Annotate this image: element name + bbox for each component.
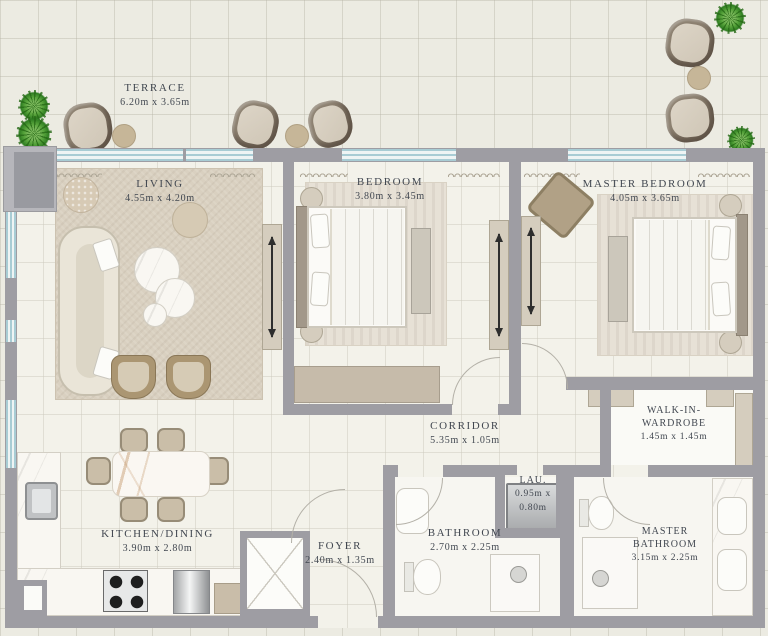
master-sink bbox=[717, 549, 747, 591]
wall-bedroom-master bbox=[509, 160, 521, 415]
living-dims: 4.55m x 4.20m bbox=[95, 192, 225, 205]
window bbox=[6, 400, 16, 468]
foyer-label: FOYER 2.40m x 1.35m bbox=[295, 540, 385, 567]
laundry-dims-2: 0.80m bbox=[505, 502, 561, 515]
stove bbox=[103, 570, 148, 612]
utility-box-inner bbox=[14, 152, 54, 208]
appliance bbox=[173, 570, 210, 614]
terrace-name: TERRACE bbox=[75, 82, 235, 95]
bed-pillow bbox=[711, 281, 731, 316]
foyer-name: FOYER bbox=[295, 540, 385, 553]
coffee-table bbox=[143, 303, 167, 327]
window bbox=[6, 212, 16, 278]
wall-corridor-south bbox=[383, 465, 398, 477]
plant-icon bbox=[714, 2, 746, 34]
walkin-name-2: WARDROBE bbox=[615, 417, 733, 430]
window bbox=[186, 149, 253, 161]
shelf-unit bbox=[262, 224, 282, 350]
wall-corridor-south bbox=[443, 465, 495, 477]
master-bedroom-dims: 4.05m x 3.65m bbox=[570, 192, 720, 205]
wall-bedroom-south bbox=[283, 404, 452, 415]
corridor-label: CORRIDOR 5.35m x 1.05m bbox=[400, 420, 530, 447]
window bbox=[568, 149, 686, 161]
window bbox=[342, 149, 456, 161]
walk-in-wardrobe-label: WALK-IN- WARDROBE 1.45m x 1.45m bbox=[615, 404, 733, 444]
opening-arrow-icon bbox=[530, 228, 532, 314]
walkin-name-1: WALK-IN- bbox=[615, 404, 733, 417]
dining-chair bbox=[86, 457, 111, 485]
kitchen-dining-label: KITCHEN/DINING 3.90m x 2.80m bbox=[85, 528, 230, 555]
accent-chair bbox=[111, 355, 156, 399]
dining-chair bbox=[157, 497, 185, 522]
bed-pillow bbox=[711, 225, 731, 260]
window bbox=[57, 149, 183, 161]
bedroom-wardrobe bbox=[489, 220, 509, 350]
kitchen-cabinet bbox=[214, 583, 242, 614]
wall-bottom bbox=[5, 616, 318, 628]
shower-head-icon bbox=[510, 566, 527, 583]
wall-corridor-south bbox=[648, 465, 765, 477]
master-bedroom-name: MASTER BEDROOM bbox=[570, 178, 720, 191]
bathroom-name: BATHROOM bbox=[400, 527, 530, 540]
master-bed-duvet bbox=[636, 220, 710, 330]
accent-chair bbox=[166, 355, 211, 399]
knit-pouf bbox=[63, 177, 99, 213]
wall-walkin-west bbox=[600, 390, 611, 477]
master-bathroom-dims: 3.15m x 2.25m bbox=[610, 552, 720, 565]
foyer-dims: 2.40m x 1.35m bbox=[295, 554, 385, 567]
walkin-cabinet bbox=[735, 393, 753, 469]
curtain-icon bbox=[698, 171, 750, 177]
kitchen-dining-name: KITCHEN/DINING bbox=[85, 528, 230, 541]
wall-masterbath-west bbox=[560, 477, 574, 616]
master-sink bbox=[717, 497, 747, 535]
wall-master-south bbox=[566, 377, 765, 390]
laundry-label: LAU. 0.95m x 0.80m bbox=[505, 474, 561, 515]
curtain-icon bbox=[210, 171, 255, 177]
master-bathroom-label: MASTER BATHROOM 3.15m x 2.25m bbox=[610, 525, 720, 565]
master-wardrobe bbox=[521, 216, 541, 326]
bedroom-name: BEDROOM bbox=[320, 176, 460, 189]
bedroom-dims: 3.80m x 3.45m bbox=[320, 190, 460, 203]
bed-duvet bbox=[330, 209, 404, 325]
kitchen-sink-basin bbox=[32, 489, 51, 513]
wall-corridor-south bbox=[566, 465, 605, 477]
wall-column-niche bbox=[24, 586, 42, 610]
bed-pillow bbox=[310, 213, 330, 248]
bed-pillow bbox=[310, 271, 330, 306]
wall-living-bedroom bbox=[283, 160, 294, 415]
terrace-side-table bbox=[687, 66, 711, 90]
master-bedroom-label: MASTER BEDROOM 4.05m x 3.65m bbox=[570, 178, 720, 205]
kitchen-dining-dims: 3.90m x 2.80m bbox=[85, 542, 230, 555]
corridor-name: CORRIDOR bbox=[400, 420, 530, 433]
master-bathroom-name-1: MASTER bbox=[610, 525, 720, 538]
dining-chair bbox=[157, 428, 185, 453]
window bbox=[6, 320, 16, 342]
terrace-side-table bbox=[285, 124, 309, 148]
opening-arrow-icon bbox=[271, 237, 273, 336]
terrace-side-table bbox=[112, 124, 136, 148]
toilet bbox=[413, 559, 441, 595]
bedroom-label: BEDROOM 3.80m x 3.45m bbox=[320, 176, 460, 203]
terrace-label: TERRACE 6.20m x 3.65m bbox=[75, 82, 235, 109]
laundry-name: LAU. bbox=[505, 474, 561, 487]
living-label: LIVING 4.55m x 4.20m bbox=[95, 178, 225, 205]
curtain-icon bbox=[52, 171, 102, 177]
dining-chair bbox=[120, 497, 148, 522]
wall-bedroom-south-stub bbox=[498, 404, 509, 415]
living-name: LIVING bbox=[95, 178, 225, 191]
walkin-dims: 1.45m x 1.45m bbox=[615, 431, 733, 444]
floor-plan: TERRACE 6.20m x 3.65m bbox=[0, 0, 768, 636]
opening-arrow-icon bbox=[498, 234, 500, 336]
bedroom-bench bbox=[411, 228, 431, 314]
terrace-dims: 6.20m x 3.65m bbox=[75, 96, 235, 109]
shower bbox=[490, 554, 540, 612]
wall-bottom bbox=[378, 616, 765, 628]
round-pouf bbox=[172, 202, 208, 238]
dining-table bbox=[112, 451, 210, 497]
corridor-dims: 5.35m x 1.05m bbox=[400, 434, 530, 447]
laundry-dims-1: 0.95m x bbox=[505, 488, 561, 501]
shower-head-icon bbox=[592, 570, 609, 587]
master-bathroom-name-2: BATHROOM bbox=[610, 538, 720, 551]
dining-chair bbox=[120, 428, 148, 453]
bathroom-label: BATHROOM 2.70m x 2.25m bbox=[400, 527, 530, 554]
master-bedroom-bench bbox=[608, 236, 628, 322]
master-bed-headboard bbox=[736, 214, 748, 336]
bathroom-dims: 2.70m x 2.25m bbox=[400, 541, 530, 554]
bedroom-dresser bbox=[294, 366, 440, 403]
